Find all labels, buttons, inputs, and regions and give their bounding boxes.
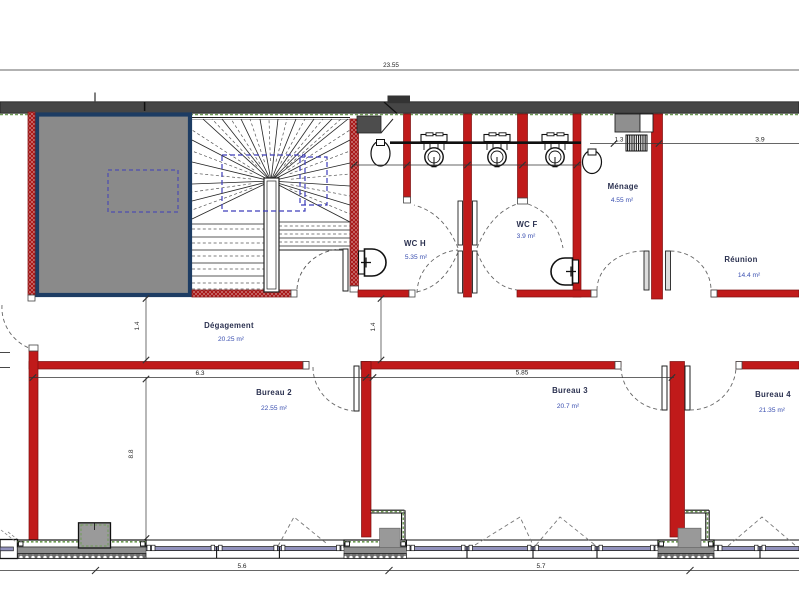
- svg-text:8.8: 8.8: [128, 449, 135, 458]
- svg-text:21.35 m²: 21.35 m²: [759, 407, 786, 414]
- svg-text:WC F: WC F: [516, 220, 537, 229]
- svg-text:1.4: 1.4: [134, 321, 141, 330]
- svg-text:5.85: 5.85: [516, 370, 529, 377]
- svg-text:5.6: 5.6: [237, 563, 246, 570]
- svg-text:1.3: 1.3: [615, 137, 624, 144]
- svg-text:1.4: 1.4: [370, 322, 377, 331]
- svg-text:Dégagement: Dégagement: [204, 321, 254, 330]
- svg-text:3.9: 3.9: [755, 137, 765, 144]
- svg-text:6.3: 6.3: [195, 370, 204, 377]
- svg-text:Bureau 3: Bureau 3: [552, 386, 588, 395]
- svg-text:3.9 m²: 3.9 m²: [517, 233, 536, 240]
- svg-text:WC H: WC H: [404, 239, 426, 248]
- svg-text:5.7: 5.7: [536, 563, 545, 570]
- svg-text:20.25 m²: 20.25 m²: [218, 336, 245, 343]
- svg-text:Bureau 2: Bureau 2: [256, 388, 292, 397]
- svg-text:22.55 m²: 22.55 m²: [261, 405, 288, 412]
- svg-text:14.4 m²: 14.4 m²: [738, 272, 761, 279]
- svg-text:Ménage: Ménage: [608, 182, 639, 191]
- svg-text:20.7 m²: 20.7 m²: [557, 403, 580, 410]
- svg-text:Réunion: Réunion: [724, 255, 757, 264]
- svg-text:23.55: 23.55: [383, 62, 399, 69]
- svg-text:4.55 m²: 4.55 m²: [611, 197, 634, 204]
- svg-text:5.35 m²: 5.35 m²: [405, 254, 428, 261]
- svg-text:Bureau 4: Bureau 4: [755, 390, 791, 399]
